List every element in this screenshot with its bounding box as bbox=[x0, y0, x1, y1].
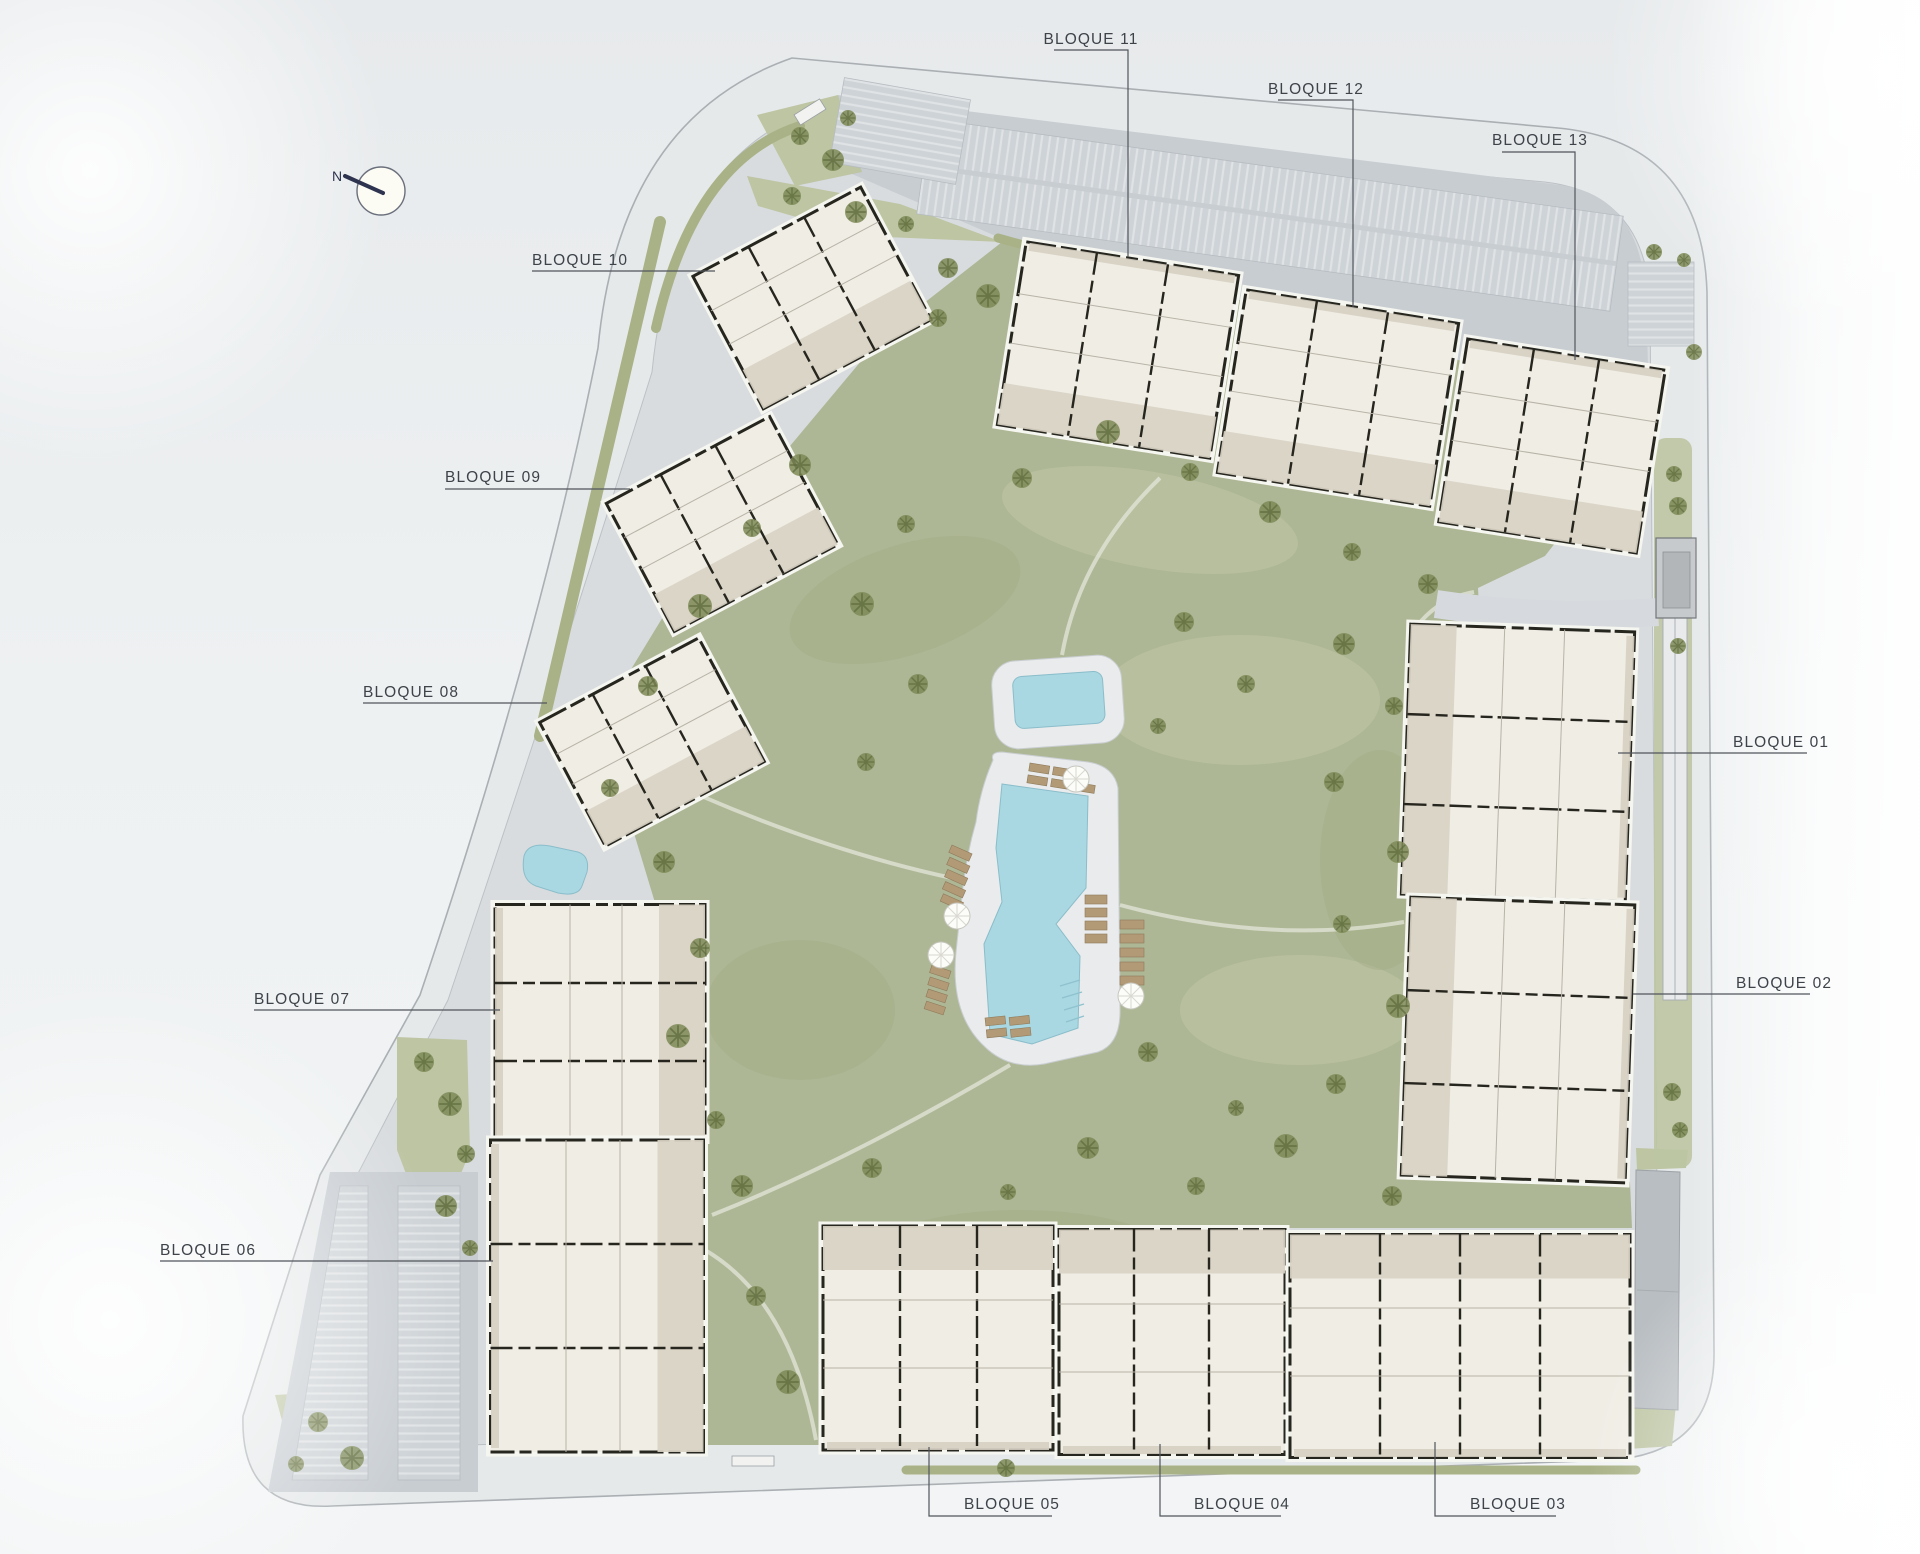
svg-text:BLOQUE 13: BLOQUE 13 bbox=[1492, 132, 1588, 149]
svg-text:BLOQUE 01: BLOQUE 01 bbox=[1733, 734, 1829, 751]
svg-text:BLOQUE 10: BLOQUE 10 bbox=[532, 252, 628, 269]
svg-text:BLOQUE 04: BLOQUE 04 bbox=[1194, 1496, 1290, 1513]
umbrella-icon bbox=[944, 903, 970, 929]
umbrella-icon bbox=[928, 942, 954, 968]
east-driveway-panel bbox=[1634, 1170, 1680, 1410]
building-bloque-12 bbox=[1217, 290, 1458, 506]
building-bloque-06 bbox=[491, 1140, 704, 1452]
northeast-corner-parking bbox=[1628, 262, 1694, 346]
building-bloque-04 bbox=[1059, 1230, 1285, 1455]
svg-text:BLOQUE 08: BLOQUE 08 bbox=[363, 684, 459, 701]
svg-text:BLOQUE 07: BLOQUE 07 bbox=[254, 991, 350, 1008]
svg-text:BLOQUE 05: BLOQUE 05 bbox=[964, 1496, 1060, 1513]
umbrella-icon bbox=[1063, 766, 1089, 792]
kids-pool bbox=[990, 654, 1126, 751]
building-bloque-13 bbox=[1439, 339, 1665, 553]
building-bloque-02 bbox=[1401, 897, 1635, 1183]
svg-text:BLOQUE 06: BLOQUE 06 bbox=[160, 1242, 256, 1259]
building-bloque-03 bbox=[1290, 1235, 1630, 1458]
svg-text:BLOQUE 12: BLOQUE 12 bbox=[1268, 81, 1364, 98]
east-ramp bbox=[1663, 596, 1687, 1000]
garden-road-connector bbox=[1436, 604, 1658, 615]
compass-north-label: N bbox=[332, 168, 342, 184]
masterplan-page: BLOQUE 01 BLOQUE 02 BLOQUE 03 BLOQUE 04 … bbox=[0, 0, 1920, 1554]
svg-text:BLOQUE 03: BLOQUE 03 bbox=[1470, 1496, 1566, 1513]
utility-box bbox=[1656, 538, 1696, 618]
svg-text:BLOQUE 09: BLOQUE 09 bbox=[445, 469, 541, 486]
bench bbox=[732, 1456, 774, 1466]
svg-text:BLOQUE 02: BLOQUE 02 bbox=[1736, 975, 1832, 992]
building-bloque-01 bbox=[1401, 624, 1634, 902]
building-bloque-07 bbox=[495, 905, 705, 1140]
building-bloque-05 bbox=[823, 1226, 1053, 1450]
umbrella-icon bbox=[1118, 983, 1144, 1009]
svg-text:BLOQUE 11: BLOQUE 11 bbox=[1044, 31, 1139, 48]
site-plan-canvas: BLOQUE 01 BLOQUE 02 BLOQUE 03 BLOQUE 04 … bbox=[0, 0, 1920, 1554]
